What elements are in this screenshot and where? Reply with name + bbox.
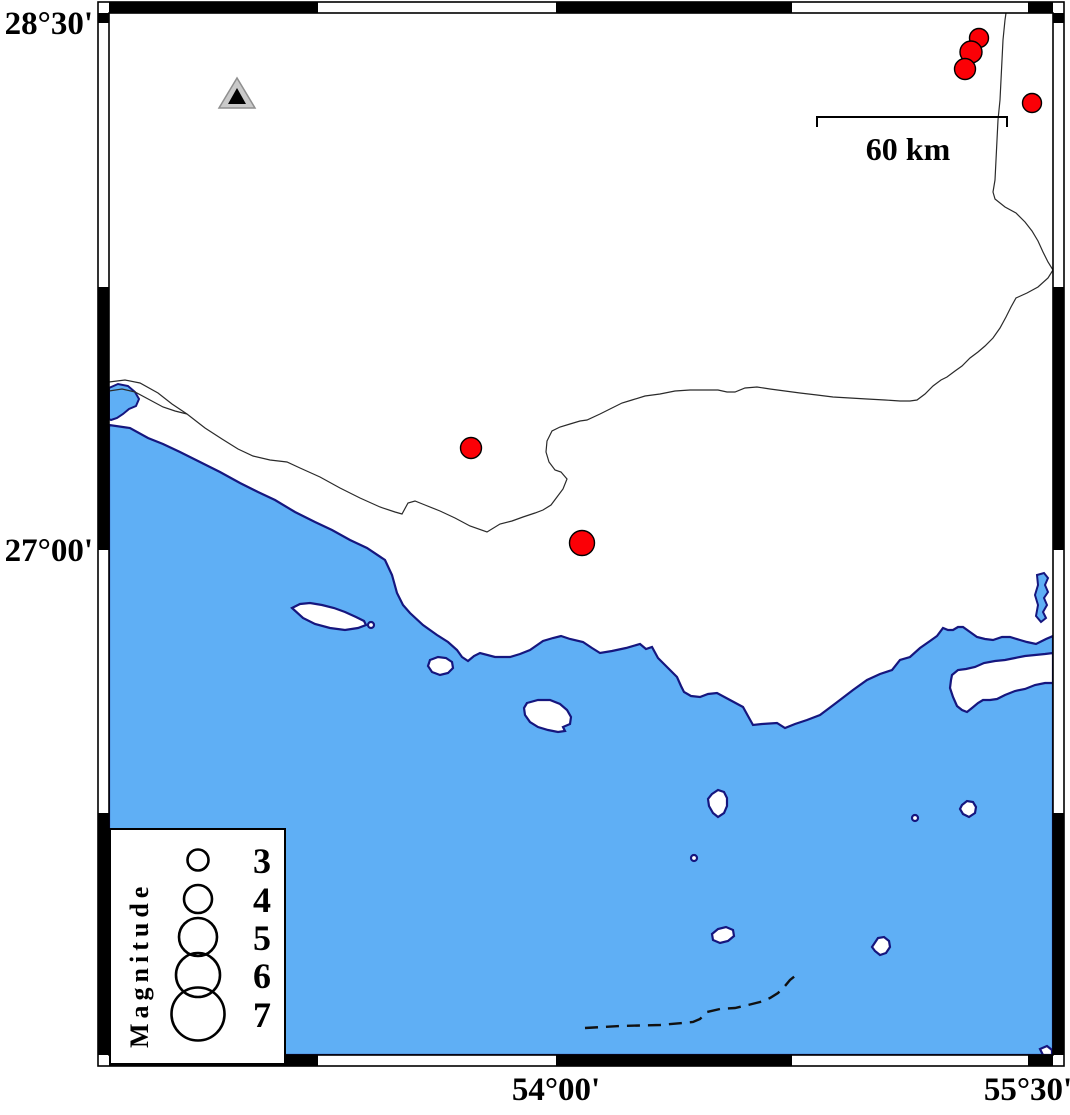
seismicity-map: 60 km Magnitude 34567 28°30' 27°00' 54°0… xyxy=(0,0,1070,1115)
latitude-label-middle: 27°00' xyxy=(5,533,93,569)
legend-magnitude-number: 4 xyxy=(253,880,271,920)
magnitude-legend: Magnitude 34567 xyxy=(110,829,285,1064)
earthquake-epicenter-marker xyxy=(1023,94,1042,113)
legend-title: Magnitude xyxy=(125,882,154,1048)
legend-numbers: 34567 xyxy=(253,841,271,1035)
longitude-label-54: 54°00' xyxy=(512,1072,600,1108)
island xyxy=(960,801,976,817)
earthquake-epicenter-marker xyxy=(461,438,482,459)
islet xyxy=(912,815,918,821)
scale-bar-label: 60 km xyxy=(866,131,951,167)
legend-magnitude-number: 5 xyxy=(253,918,271,958)
legend-magnitude-number: 3 xyxy=(253,841,271,881)
earthquake-epicenter-marker xyxy=(955,59,976,80)
map-canvas: 60 km Magnitude 34567 28°30' 27°00' 54°0… xyxy=(0,0,1070,1115)
islet xyxy=(691,855,697,861)
earthquake-epicenter-marker xyxy=(570,531,595,556)
island xyxy=(1040,1046,1052,1055)
legend-magnitude-number: 7 xyxy=(253,995,271,1035)
islet xyxy=(368,622,374,628)
legend-magnitude-number: 6 xyxy=(253,956,271,996)
island xyxy=(428,657,453,675)
longitude-label-55-30: 55°30' xyxy=(984,1072,1070,1108)
latitude-label-top: 28°30' xyxy=(5,6,93,42)
